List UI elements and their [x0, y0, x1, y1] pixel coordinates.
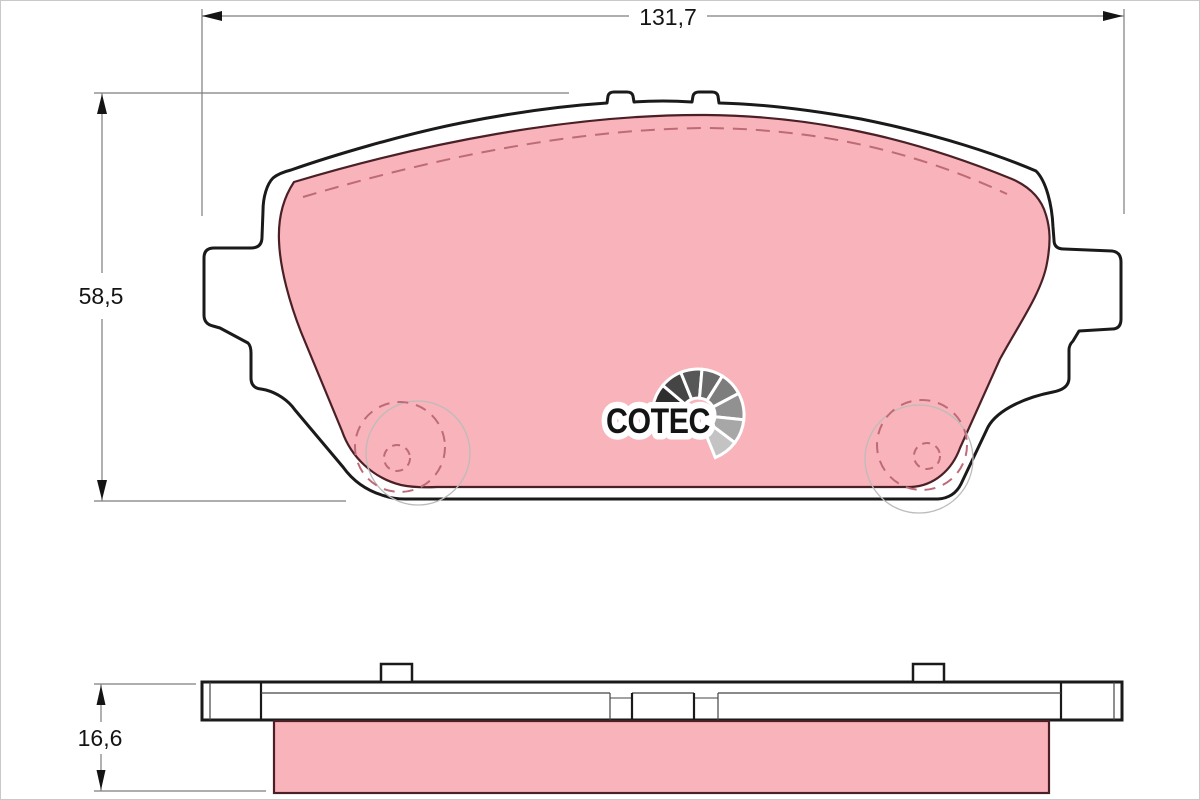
dimension-width-label: 131,7 — [639, 4, 697, 30]
arrowhead-right — [1103, 11, 1123, 21]
drawing-canvas: COTEC 131,7 — [0, 0, 1200, 800]
arrowhead-left — [202, 11, 222, 21]
arrowhead-up — [97, 94, 107, 114]
side-friction-block — [274, 721, 1049, 793]
arrowhead-down — [97, 480, 107, 500]
side-tab-right — [913, 664, 944, 682]
arrowhead-down — [97, 770, 106, 790]
dimension-height-label: 58,5 — [79, 283, 124, 309]
side-backing-plate — [202, 682, 1122, 720]
side-view — [202, 664, 1122, 793]
cotec-logo-text: COTEC — [606, 402, 710, 441]
arrowhead-up — [97, 685, 106, 705]
brake-pad-diagram: COTEC 131,7 — [1, 1, 1200, 800]
dimension-thickness-label: 16,6 — [78, 725, 123, 751]
side-tab-left — [381, 664, 412, 682]
top-view: COTEC — [204, 92, 1121, 513]
